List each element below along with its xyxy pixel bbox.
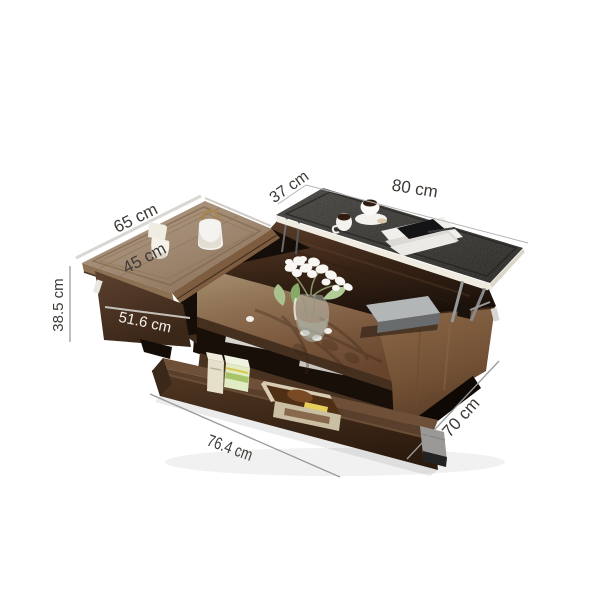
svg-text:38.5 cm: 38.5 cm xyxy=(50,278,67,331)
